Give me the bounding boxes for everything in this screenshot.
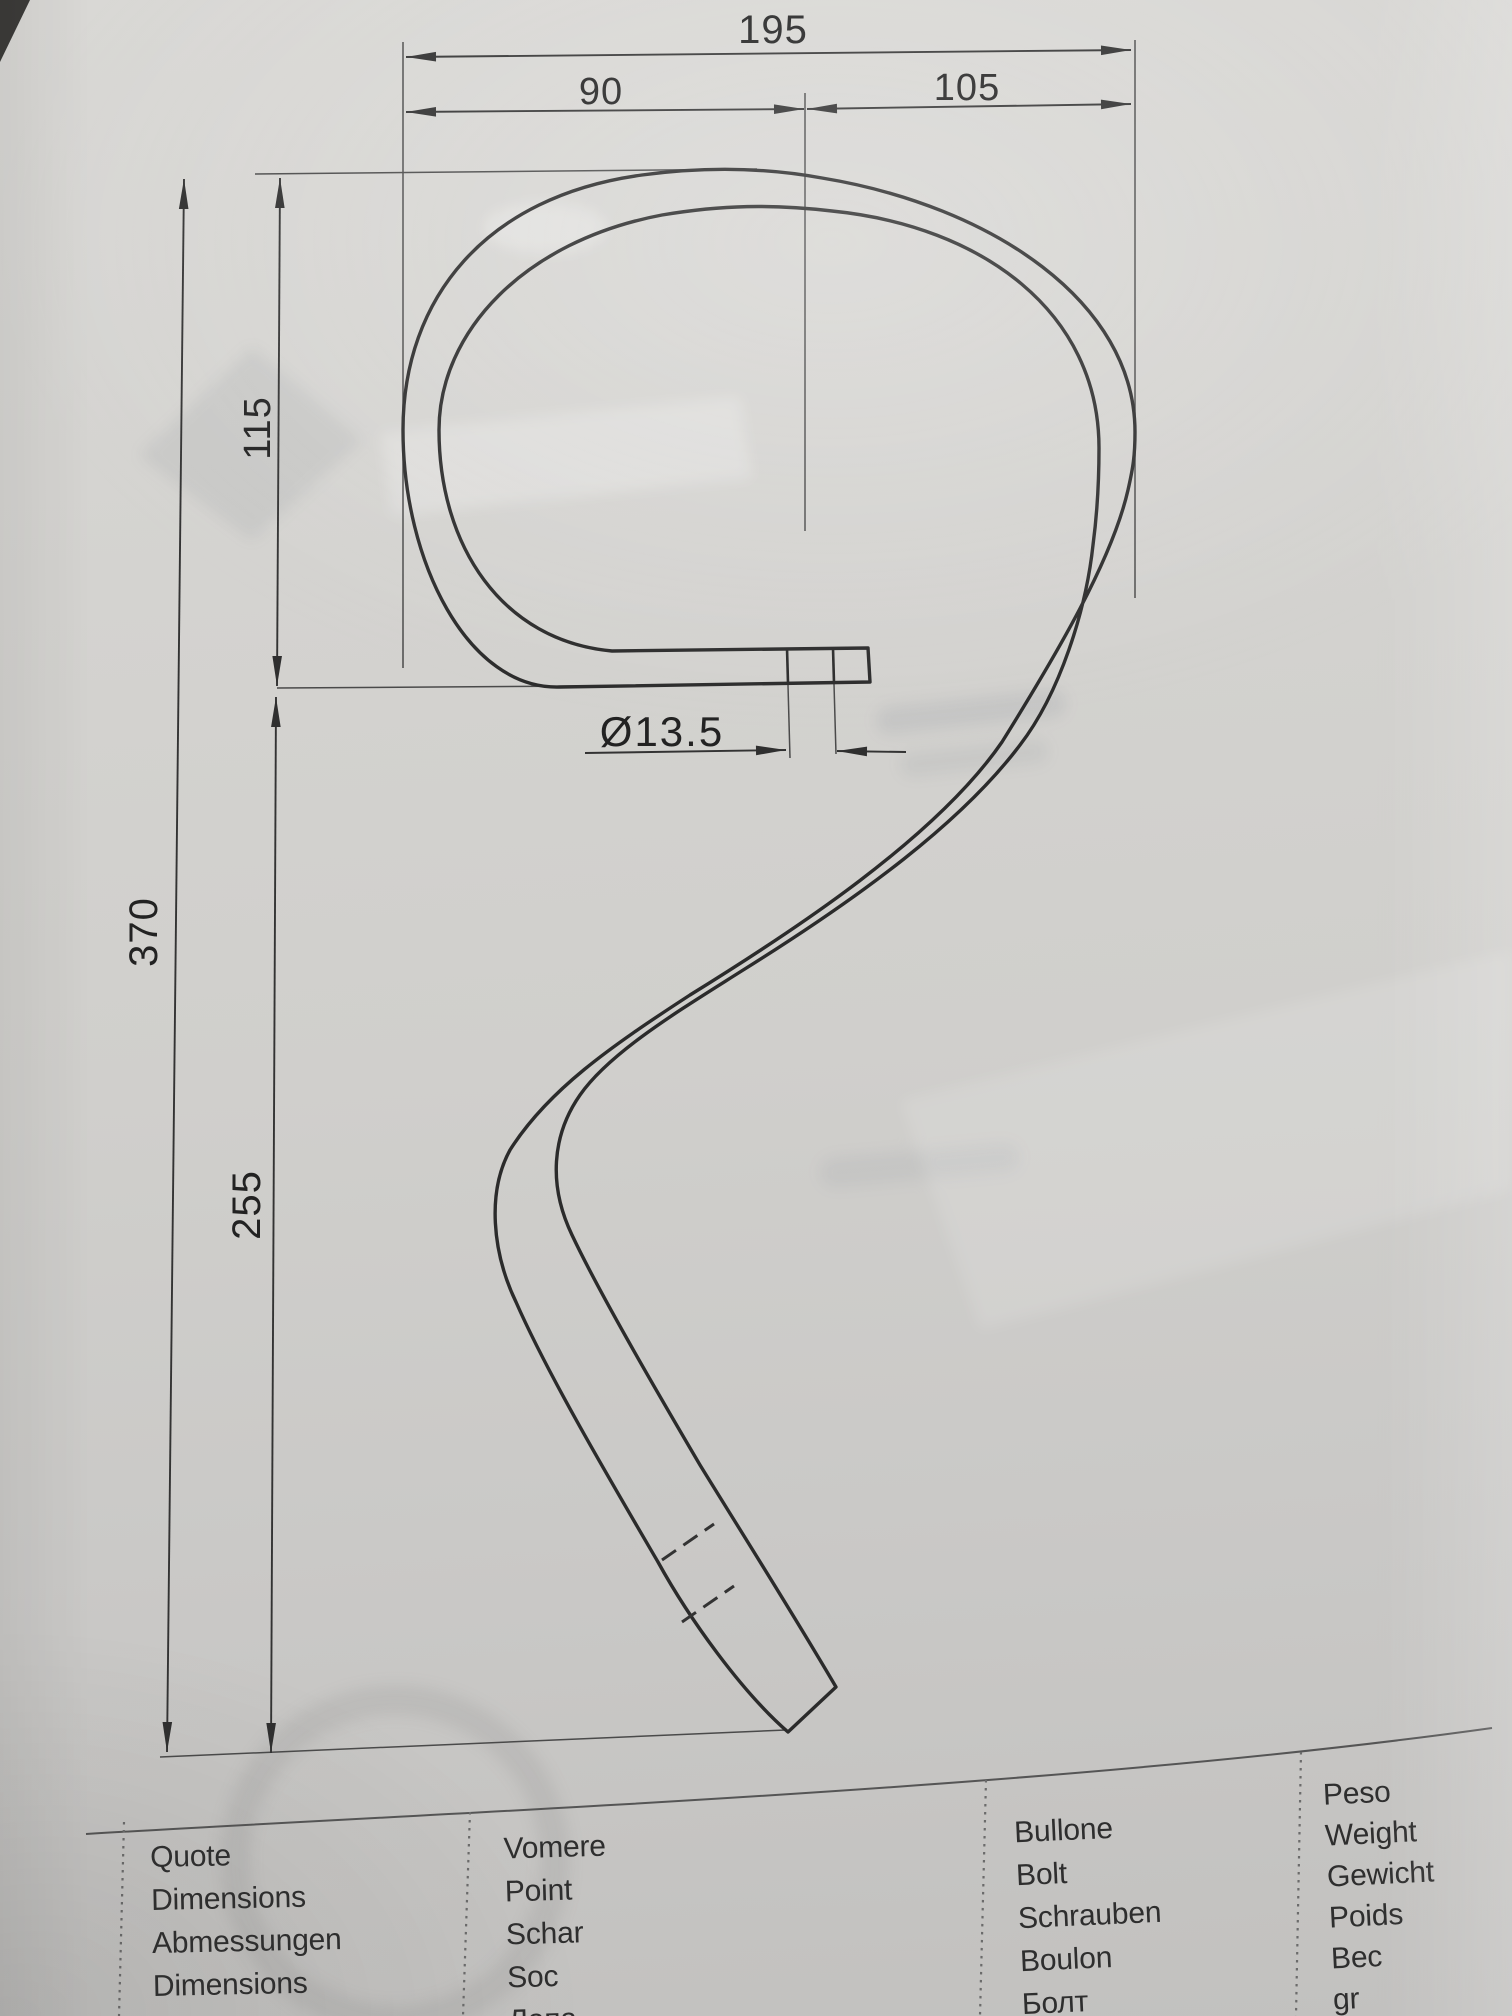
- table-column-vomere: Vomere Point Schar Soc Лапа: [503, 1825, 611, 2016]
- bolt-hole-edge-left: [787, 648, 788, 683]
- table-separator-4: [1296, 1752, 1301, 2016]
- watermark-band: [380, 396, 752, 516]
- dimension-lines: [167, 50, 1131, 1753]
- dim-255-line: [271, 697, 276, 1753]
- s-tine-outline: [403, 169, 1135, 1732]
- table-column-quote: Quote Dimensions Abmessungen Dimensions …: [150, 1832, 344, 2016]
- table-header-line: Boulon: [1019, 1934, 1164, 1983]
- watermark-light-band: [900, 950, 1512, 1330]
- table-header-line: Soc: [507, 1954, 610, 2000]
- table-separator-1: [119, 1822, 124, 2016]
- flex-mark-1: [662, 1524, 714, 1560]
- table-header-line: Bolt: [1015, 1848, 1160, 1897]
- photo-corner-shadow: [0, 0, 30, 62]
- dim-370-label: 370: [122, 897, 166, 967]
- table-header-line: Poids: [1328, 1892, 1437, 1938]
- tine-flex-marks: [662, 1524, 734, 1622]
- dim-195-label: 195: [738, 8, 808, 52]
- table-header-line: Dimensions: [152, 1961, 342, 2008]
- dim-hole-leader-right: [837, 751, 906, 752]
- bolt-hole-lines: [787, 648, 834, 683]
- flex-mark-2: [682, 1586, 734, 1622]
- table-header-line: Abmessungen: [152, 1918, 342, 1965]
- table-header-line: Bullone: [1013, 1805, 1158, 1854]
- table-header-line: Болт: [1021, 1977, 1166, 2016]
- table-header-line: Schar: [505, 1911, 608, 1957]
- table-header-line: Лапа: [508, 1997, 611, 2016]
- dim-hole-diameter-label: Ø13.5: [600, 708, 724, 755]
- table-header-line: Gewicht: [1326, 1851, 1435, 1897]
- dim-255-label: 255: [225, 1170, 269, 1240]
- table-header-line: Peso: [1322, 1770, 1431, 1816]
- table-separator-3: [980, 1780, 986, 2016]
- table-header-line: Schrauben: [1017, 1891, 1162, 1940]
- table-column-bullone: Bullone Bolt Schrauben Boulon Болт: [1013, 1805, 1166, 2016]
- technical-drawing-svg: 195 90 105 115 370 255 Ø13.5: [0, 0, 1512, 2016]
- table-header-line: Вес: [1330, 1933, 1439, 1979]
- table-column-peso: Peso Weight Gewicht Poids Вес gr: [1322, 1770, 1441, 2016]
- watermark-text-ghost-1: [875, 688, 1067, 736]
- dim-105-label: 105: [934, 67, 1000, 109]
- dim-115-label: 115: [237, 396, 279, 460]
- catalog-page-photo: 195 90 105 115 370 255 Ø13.5 Quote Dimen…: [0, 0, 1512, 2016]
- table-header-line: Weight: [1324, 1810, 1433, 1856]
- bolt-hole-edge-right: [833, 648, 834, 683]
- dim-90-label: 90: [579, 71, 623, 113]
- table-header-line: Vomere: [503, 1825, 606, 1871]
- table-header-line: Dimensions: [151, 1875, 341, 1922]
- dim-370-line: [167, 179, 184, 1752]
- extension-lines: [160, 40, 1135, 1757]
- table-header-line: Quote: [150, 1832, 340, 1879]
- table-header-line: gr: [1332, 1974, 1441, 2016]
- table-header-line: Point: [504, 1868, 607, 1914]
- watermark-ghosts: [140, 202, 1512, 2016]
- watermark-text-ghost-2: [899, 738, 1049, 777]
